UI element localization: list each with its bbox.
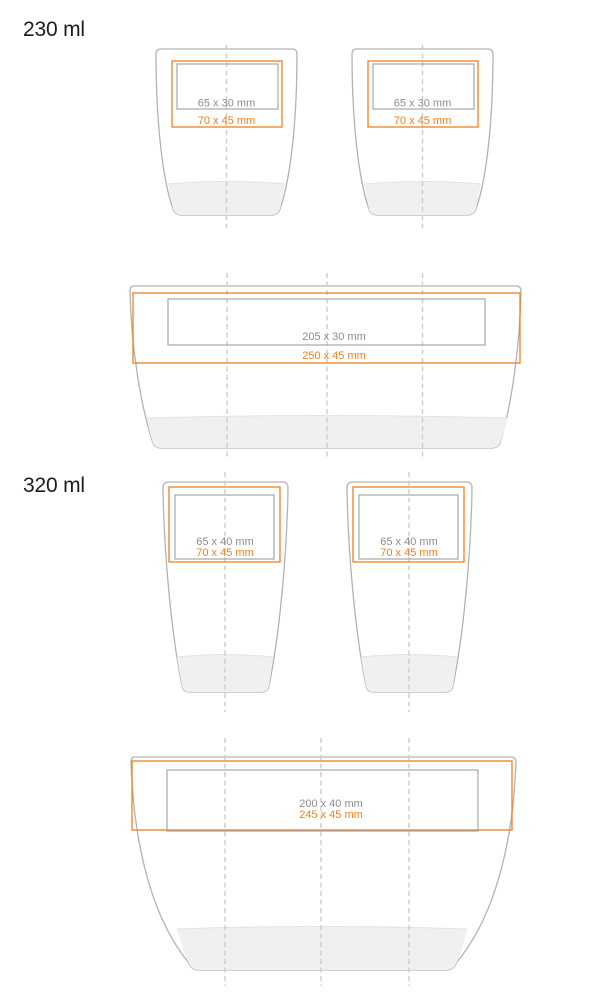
max-print-area-label: 70 x 45 mm: [380, 547, 437, 559]
cup-base-fill: [177, 927, 467, 971]
max-print-area-label: 250 x 45 mm: [302, 350, 366, 362]
cups-drawing: 65 x 30 mm 70 x 45 mm 65 x 30 mm 70 x 45…: [0, 0, 600, 1000]
print-area-label: 65 x 30 mm: [394, 98, 451, 110]
print-area-label: 65 x 30 mm: [198, 98, 255, 110]
print-area-label: 205 x 30 mm: [302, 331, 366, 343]
max-print-area-label: 245 x 45 mm: [299, 809, 363, 821]
cup-230-front-right: 65 x 30 mm 70 x 45 mm: [352, 45, 493, 228]
max-print-area-label: 70 x 45 mm: [394, 115, 451, 127]
cup-320-wrap: 200 x 40 mm 245 x 45 mm: [131, 738, 516, 986]
max-print-area-label: 70 x 45 mm: [196, 547, 253, 559]
cup-320-front-right: 65 x 40 mm 70 x 45 mm: [347, 472, 472, 712]
max-print-area-label: 70 x 45 mm: [198, 115, 255, 127]
cup-230-front-left: 65 x 30 mm 70 x 45 mm: [156, 45, 297, 228]
cup-320-front-left: 65 x 40 mm 70 x 45 mm: [163, 472, 288, 712]
cup-230-wrap: 205 x 30 mm 250 x 45 mm: [130, 273, 521, 460]
print-area-diagram: 230 ml 320 ml 65 x 30 mm 70 x 45 mm 65 x…: [0, 0, 600, 1000]
